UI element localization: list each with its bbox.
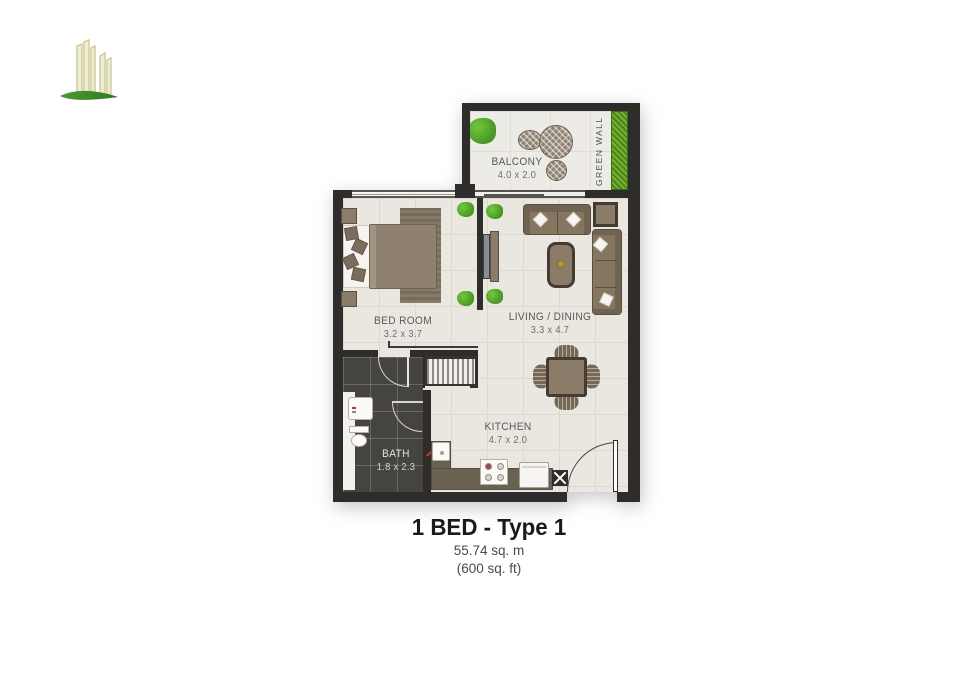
- room-dimensions: 1.8 x 2.3: [359, 461, 433, 474]
- dining-chair: [533, 364, 546, 389]
- toilet-bowl: [351, 434, 367, 447]
- coffee-table: [547, 242, 575, 288]
- bed-duvet: [369, 224, 437, 289]
- wall: [628, 103, 640, 502]
- balcony-label: BALCONY 4.0 x 2.0: [471, 156, 563, 182]
- kitchen-sink: [432, 442, 450, 461]
- burner: [497, 474, 504, 481]
- wardrobe: [425, 356, 477, 386]
- kitchen-label: KITCHEN 4.7 x 2.0: [462, 421, 554, 447]
- wall: [423, 390, 431, 492]
- three-seat-sofa: [592, 229, 622, 315]
- sofa-back: [615, 230, 621, 314]
- room-dimensions: 4.0 x 2.0: [471, 169, 563, 182]
- plan-caption: 1 BED - Type 1 55.74 sq. m (600 sq. ft): [309, 514, 669, 577]
- bath-door-leaf: [407, 357, 409, 387]
- green-wall-hedge: [611, 111, 628, 190]
- balcony-sliding-door: [475, 190, 585, 198]
- room-name: KITCHEN: [462, 421, 554, 434]
- stove: [480, 459, 508, 485]
- sofa-armrest: [584, 205, 590, 234]
- dining-table: [546, 357, 587, 397]
- cushion-seam: [557, 211, 558, 235]
- wall: [333, 190, 343, 502]
- two-seat-sofa: [523, 204, 591, 235]
- burner: [485, 463, 492, 470]
- plant: [486, 289, 503, 304]
- bath-label: BATH 1.8 x 2.3: [359, 448, 433, 474]
- faucet-hot-mark: [352, 407, 356, 409]
- plan-title: 1 BED - Type 1: [314, 514, 663, 541]
- burner: [497, 463, 504, 470]
- cushion-seam: [595, 287, 617, 288]
- wall: [333, 492, 567, 502]
- plant: [457, 202, 474, 217]
- sliding-door-leaf: [484, 194, 545, 196]
- entry-door-leaf: [613, 440, 618, 492]
- table-decor: [557, 260, 565, 268]
- room-dimensions: 4.7 x 2.0: [462, 434, 554, 447]
- dining-chair: [554, 397, 579, 410]
- drain: [440, 451, 444, 455]
- throw-pillow: [533, 212, 549, 228]
- bedroom-window: [352, 190, 455, 198]
- room-name: LIVING / DINING: [486, 311, 615, 324]
- tv-screen: [483, 234, 490, 279]
- room-name: BALCONY: [471, 156, 563, 169]
- window-glass-line: [352, 194, 455, 195]
- plant: [457, 291, 474, 306]
- page: { "logo": { "name": "green-towers-logo" …: [0, 0, 954, 674]
- toilet-tank: [349, 426, 369, 433]
- bath-sink: [348, 397, 373, 420]
- sofa-armrest: [593, 230, 621, 235]
- faucet: [352, 411, 356, 413]
- room-name: BED ROOM: [357, 315, 449, 328]
- open-door-leaf: [388, 346, 478, 348]
- green-wall-label: GREEN WALL: [594, 113, 610, 189]
- wall: [462, 103, 640, 111]
- green-towers-logo: [46, 36, 130, 108]
- throw-pillow: [599, 292, 614, 307]
- plan-area-imperial: (600 sq. ft): [309, 561, 669, 577]
- room-name: BATH: [359, 448, 433, 461]
- duvet-fold: [370, 225, 376, 288]
- bedroom-label: BED ROOM 3.2 x 3.7: [357, 315, 449, 341]
- throw-pillow: [566, 212, 582, 228]
- side-table: [593, 202, 618, 227]
- door-hinge-mark: [388, 341, 390, 348]
- plant: [468, 118, 496, 144]
- pillow: [351, 267, 366, 282]
- sofa-armrest: [524, 205, 530, 234]
- wall: [455, 184, 475, 198]
- burner: [485, 474, 492, 481]
- tv-console: [490, 231, 499, 282]
- plan-area-metric: 55.74 sq. m: [309, 543, 669, 559]
- floor-plan: BALCONY 4.0 x 2.0 GREEN WALL BED ROOM 3.…: [333, 98, 640, 502]
- nightstand: [341, 291, 357, 307]
- room-dimensions: 3.2 x 3.7: [357, 328, 449, 341]
- fridge-handle: [522, 466, 546, 468]
- fridge: [519, 462, 549, 488]
- shaft-box: [552, 470, 568, 486]
- wall: [617, 492, 640, 502]
- nightstand: [341, 208, 357, 224]
- cushion-seam: [595, 260, 617, 261]
- throw-pillow: [593, 237, 608, 252]
- wall: [585, 190, 628, 198]
- living-dining-label: LIVING / DINING 3.3 x 4.7: [486, 311, 615, 337]
- plant: [486, 204, 503, 219]
- room-dimensions: 3.3 x 4.7: [486, 324, 615, 337]
- balcony-chair: [539, 125, 573, 159]
- dining-chair: [587, 364, 600, 389]
- wall: [462, 103, 470, 195]
